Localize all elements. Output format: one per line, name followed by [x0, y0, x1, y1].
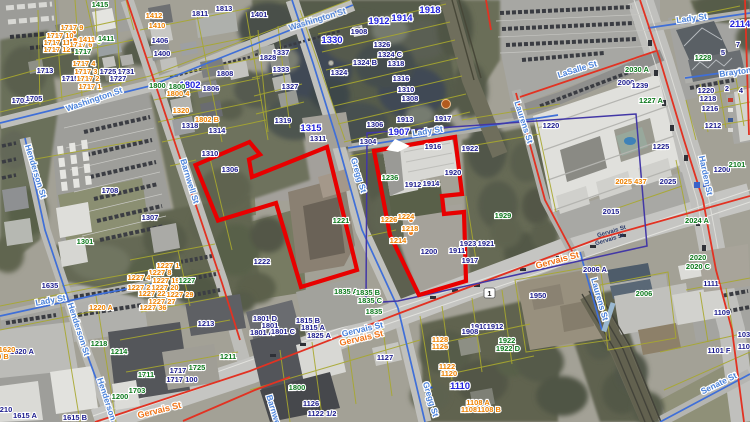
svg-text:2: 2	[725, 84, 729, 93]
svg-text:1108 B: 1108 B	[477, 405, 501, 414]
svg-text:1330: 1330	[321, 35, 342, 46]
svg-text:1310: 1310	[398, 85, 415, 94]
svg-text:0 B: 0 B	[0, 352, 9, 361]
svg-text:1811: 1811	[192, 9, 208, 18]
svg-text:1917: 1917	[435, 114, 452, 123]
svg-text:2015: 2015	[603, 207, 620, 216]
svg-text:1412: 1412	[146, 11, 163, 20]
svg-text:1717 12: 1717 12	[43, 45, 70, 54]
svg-text:1808: 1808	[217, 69, 234, 78]
svg-text:1304: 1304	[360, 137, 378, 146]
svg-text:1306: 1306	[222, 165, 239, 174]
svg-text:1310: 1310	[202, 149, 219, 158]
svg-text:2025: 2025	[660, 177, 677, 186]
svg-text:1110: 1110	[450, 381, 470, 392]
svg-text:1825 A: 1825 A	[307, 331, 331, 340]
svg-text:1324 B: 1324 B	[353, 58, 378, 67]
svg-text:1922: 1922	[462, 144, 479, 153]
svg-text:1711: 1711	[138, 370, 154, 379]
svg-text:1224: 1224	[398, 212, 416, 221]
svg-text:1806: 1806	[203, 84, 220, 93]
svg-text:210: 210	[0, 405, 12, 414]
svg-text:2024 A: 2024 A	[685, 216, 709, 225]
svg-text:1239: 1239	[632, 81, 649, 90]
svg-text:1411: 1411	[98, 34, 114, 43]
svg-text:1101 F: 1101 F	[708, 346, 731, 355]
svg-text:1222: 1222	[254, 257, 271, 266]
svg-text:1226: 1226	[381, 215, 398, 224]
svg-text:1218: 1218	[700, 94, 717, 103]
svg-text:1218: 1218	[402, 224, 419, 233]
svg-text:1635: 1635	[42, 281, 59, 290]
svg-text:1320: 1320	[173, 106, 190, 115]
svg-text:1907: 1907	[388, 127, 409, 138]
svg-text:2114: 2114	[730, 19, 750, 30]
svg-text:2020: 2020	[690, 253, 707, 262]
svg-text:1922 D: 1922 D	[496, 344, 521, 353]
svg-text:1301: 1301	[77, 237, 94, 246]
svg-text:1109: 1109	[714, 308, 730, 317]
svg-text:1923: 1923	[460, 239, 477, 248]
svg-text:1111: 1111	[703, 279, 718, 288]
svg-text:1227 36: 1227 36	[139, 303, 166, 312]
svg-text:1615 B: 1615 B	[63, 413, 88, 422]
svg-text:1227: 1227	[179, 276, 196, 285]
svg-text:1705: 1705	[26, 94, 43, 103]
svg-text:1333: 1333	[273, 65, 290, 74]
svg-text:1108: 1108	[461, 405, 477, 414]
svg-text:2101: 2101	[729, 160, 746, 169]
svg-text:1835 C: 1835 C	[358, 296, 383, 305]
svg-text:1908: 1908	[462, 327, 479, 336]
svg-text:1126: 1126	[432, 342, 448, 351]
svg-text:1236: 1236	[382, 173, 399, 182]
svg-text:1327: 1327	[282, 82, 299, 91]
svg-text:1324 C: 1324 C	[378, 50, 403, 59]
svg-text:1200: 1200	[112, 392, 129, 401]
svg-text:1213: 1213	[198, 319, 215, 328]
svg-text:1802 B: 1802 B	[195, 115, 220, 124]
svg-text:1917: 1917	[462, 256, 479, 265]
svg-text:1912: 1912	[487, 322, 504, 331]
svg-text:1801 C: 1801 C	[271, 327, 296, 336]
svg-text:1324: 1324	[331, 68, 349, 77]
svg-text:1225: 1225	[653, 142, 670, 151]
svg-text:1916: 1916	[425, 142, 442, 151]
svg-text:1920: 1920	[445, 168, 462, 177]
svg-text:1212: 1212	[705, 121, 722, 130]
svg-text:1228: 1228	[695, 53, 712, 62]
svg-text:1214: 1214	[111, 347, 129, 356]
svg-text:1314: 1314	[209, 126, 227, 135]
svg-text:1929: 1929	[495, 211, 512, 220]
svg-text:1914: 1914	[423, 179, 441, 188]
svg-text:2020 C: 2020 C	[686, 262, 711, 271]
svg-text:1220: 1220	[543, 121, 560, 130]
svg-text:1306: 1306	[367, 120, 384, 129]
svg-text:1912: 1912	[405, 180, 422, 189]
svg-text:1725: 1725	[189, 363, 206, 372]
svg-text:1200: 1200	[421, 247, 438, 256]
svg-text:1615 A: 1615 A	[13, 411, 37, 420]
svg-text:1800: 1800	[169, 82, 186, 91]
svg-text:1800: 1800	[289, 383, 306, 392]
svg-text:1319: 1319	[275, 116, 292, 125]
svg-text:1307: 1307	[142, 213, 159, 222]
svg-text:1: 1	[487, 289, 491, 298]
svg-text:1406: 1406	[152, 36, 169, 45]
svg-text:1415: 1415	[92, 0, 109, 9]
svg-text:1717: 1717	[75, 47, 92, 56]
svg-text:2006: 2006	[636, 289, 653, 298]
svg-text:2030 A: 2030 A	[625, 65, 649, 74]
svg-text:1214: 1214	[390, 236, 408, 245]
svg-text:1918: 1918	[419, 5, 440, 16]
svg-text:1120: 1120	[441, 369, 457, 378]
svg-text:1315: 1315	[300, 123, 322, 134]
svg-text:1126: 1126	[303, 399, 319, 408]
svg-text:5: 5	[721, 48, 725, 57]
svg-text:1211: 1211	[220, 352, 236, 361]
svg-text:1717: 1717	[170, 366, 187, 375]
svg-text:1835: 1835	[366, 307, 383, 316]
svg-text:1713: 1713	[37, 66, 54, 75]
svg-text:1828: 1828	[260, 53, 277, 62]
svg-text:1227 A: 1227 A	[639, 96, 663, 105]
svg-text:1401: 1401	[251, 10, 268, 19]
svg-text:1127: 1127	[377, 353, 393, 362]
svg-text:1835 A: 1835 A	[334, 287, 358, 296]
svg-text:1717 100: 1717 100	[166, 375, 197, 384]
svg-text:1220 A: 1220 A	[89, 303, 113, 312]
svg-text:1400: 1400	[154, 49, 171, 58]
svg-text:1708: 1708	[102, 186, 119, 195]
svg-text:1326: 1326	[374, 40, 391, 49]
svg-text:1717 1: 1717 1	[79, 82, 102, 91]
svg-text:1221: 1221	[333, 216, 350, 225]
svg-text:1914: 1914	[391, 13, 413, 24]
svg-text:2025 437: 2025 437	[615, 177, 646, 186]
svg-text:1103: 1103	[738, 342, 750, 351]
svg-text:1813: 1813	[216, 4, 233, 13]
svg-text:1218: 1218	[91, 339, 108, 348]
svg-text:1316: 1316	[393, 74, 410, 83]
svg-text:1216: 1216	[702, 104, 719, 113]
svg-text:1727: 1727	[110, 74, 127, 83]
svg-text:1122 1/2: 1122 1/2	[308, 409, 337, 418]
svg-text:1912: 1912	[368, 16, 389, 27]
svg-text:7: 7	[736, 40, 740, 49]
svg-text:2006 A: 2006 A	[583, 265, 607, 274]
svg-text:1703: 1703	[129, 386, 146, 395]
svg-text:1908: 1908	[351, 27, 368, 36]
svg-text:1318: 1318	[388, 59, 405, 68]
svg-text:1410: 1410	[149, 21, 166, 30]
svg-text:1308: 1308	[402, 94, 419, 103]
svg-text:1227 4: 1227 4	[128, 273, 152, 282]
svg-text:1921: 1921	[478, 239, 495, 248]
svg-text:1950: 1950	[530, 291, 547, 300]
svg-text:1913: 1913	[397, 115, 414, 124]
svg-text:1311: 1311	[310, 134, 326, 143]
svg-text:1032: 1032	[738, 330, 750, 339]
